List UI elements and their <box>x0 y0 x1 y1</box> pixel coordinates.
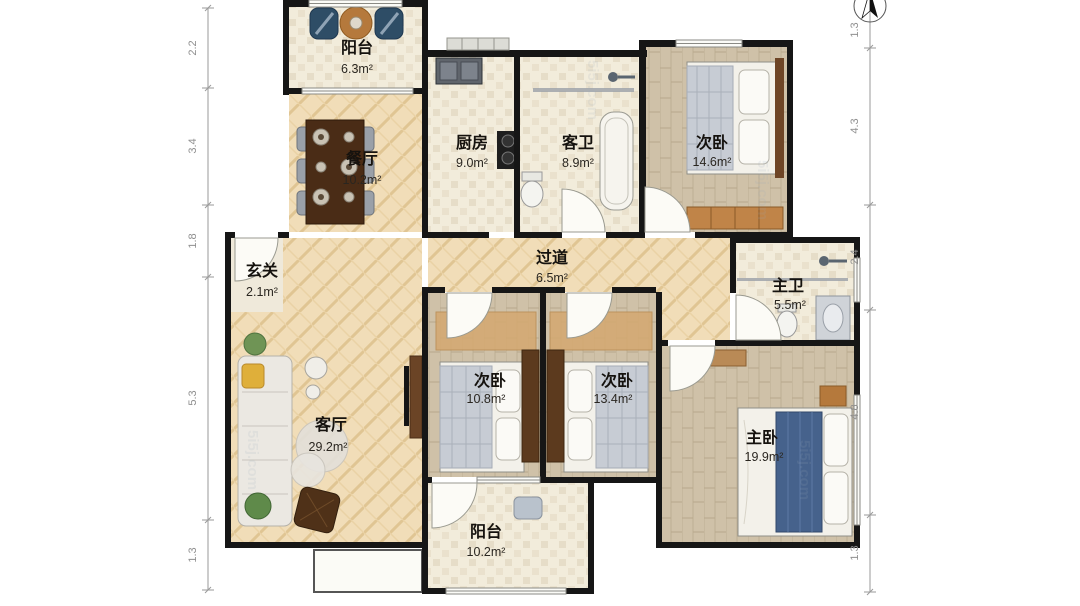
room-area-living: 29.2m² <box>309 440 348 454</box>
watermark-text: 5i5j.com <box>796 440 813 500</box>
room-area-bedroom-mid-left: 10.8m² <box>467 392 506 406</box>
room-label-balcony-bottom: 阳台 <box>470 522 502 541</box>
washer-icon <box>514 497 542 519</box>
dim-label: 2.2 <box>187 40 199 55</box>
dim-label: 2.4 <box>849 249 861 264</box>
dim-label: 5.3 <box>187 390 199 405</box>
watermark-text: 5i5j.com <box>244 430 261 490</box>
room-label-entry: 玄关 <box>246 261 278 280</box>
room-area-master-bath: 5.5m² <box>774 298 806 312</box>
watermark-text: 5i5j.com <box>584 60 601 120</box>
room-label-bedroom-ne: 次卧 <box>696 133 728 152</box>
room-label-living: 客厅 <box>315 415 347 434</box>
room-area-kitchen: 9.0m² <box>456 156 488 170</box>
room-area-balcony-top: 6.3m² <box>341 62 373 76</box>
floor-plan-page: 5i5j.com 5i5j.com 5i5j.com 5i5j.com 阳台 6… <box>0 0 1080 606</box>
room-area-guest-bath: 8.9m² <box>562 156 594 170</box>
room-area-entry: 2.1m² <box>246 285 278 299</box>
room-label-guest-bath: 客卫 <box>562 133 594 152</box>
dim-labels-left: 2.2 3.4 1.8 5.3 1.3 <box>187 40 199 562</box>
room-area-bedroom-mid-right: 13.4m² <box>594 392 633 406</box>
room-area-master-bedroom: 19.9m² <box>745 450 784 464</box>
dim-label: 4.3 <box>849 118 861 133</box>
watermark-text: 5i5j.com <box>754 160 771 220</box>
dim-label: 3.4 <box>187 138 199 153</box>
dim-label: 4.8 <box>849 404 861 419</box>
room-area-balcony-bottom: 10.2m² <box>467 545 506 559</box>
room-label-kitchen: 厨房 <box>456 133 488 152</box>
dim-label: 1.3 <box>849 22 861 37</box>
room-area-dining: 10.2m² <box>343 173 382 187</box>
room-label-master-bath: 主卫 <box>772 276 804 295</box>
balcony-chairs-icon <box>310 7 403 39</box>
tv-unit-icon <box>404 356 422 438</box>
room-label-corridor: 过道 <box>536 248 568 267</box>
window-bedroom-ne <box>676 40 742 47</box>
kitchen-sink-icon <box>436 58 482 84</box>
dim-label: 1.3 <box>187 547 199 562</box>
dim-label: 1.8 <box>187 233 199 248</box>
room-area-corridor: 6.5m² <box>536 271 568 285</box>
dimension-line-right <box>864 6 876 595</box>
window-balcony-bottom <box>446 588 566 594</box>
dimension-line-left <box>202 5 214 593</box>
dim-label: 1.3 <box>849 545 861 560</box>
corridor-floor <box>428 238 730 292</box>
floor-plan-drawing: 5i5j.com 5i5j.com 5i5j.com 5i5j.com 阳台 6… <box>0 0 1080 606</box>
room-label-master-bedroom: 主卧 <box>746 428 778 447</box>
corridor-ext-floor <box>662 292 730 340</box>
room-area-bedroom-ne: 14.6m² <box>693 155 732 169</box>
dining-table-icon <box>297 120 374 224</box>
slider-living-balcony <box>477 477 540 483</box>
room-label-bedroom-mid-left: 次卧 <box>474 371 506 390</box>
window-kitchen <box>447 38 509 50</box>
window-balcony-top <box>309 0 402 7</box>
slider-dining-balcony <box>302 88 413 94</box>
room-label-dining: 餐厅 <box>345 149 378 168</box>
room-label-balcony-top: 阳台 <box>341 38 373 57</box>
balcony-extension <box>314 550 422 592</box>
room-label-bedroom-mid-right: 次卧 <box>601 371 633 390</box>
